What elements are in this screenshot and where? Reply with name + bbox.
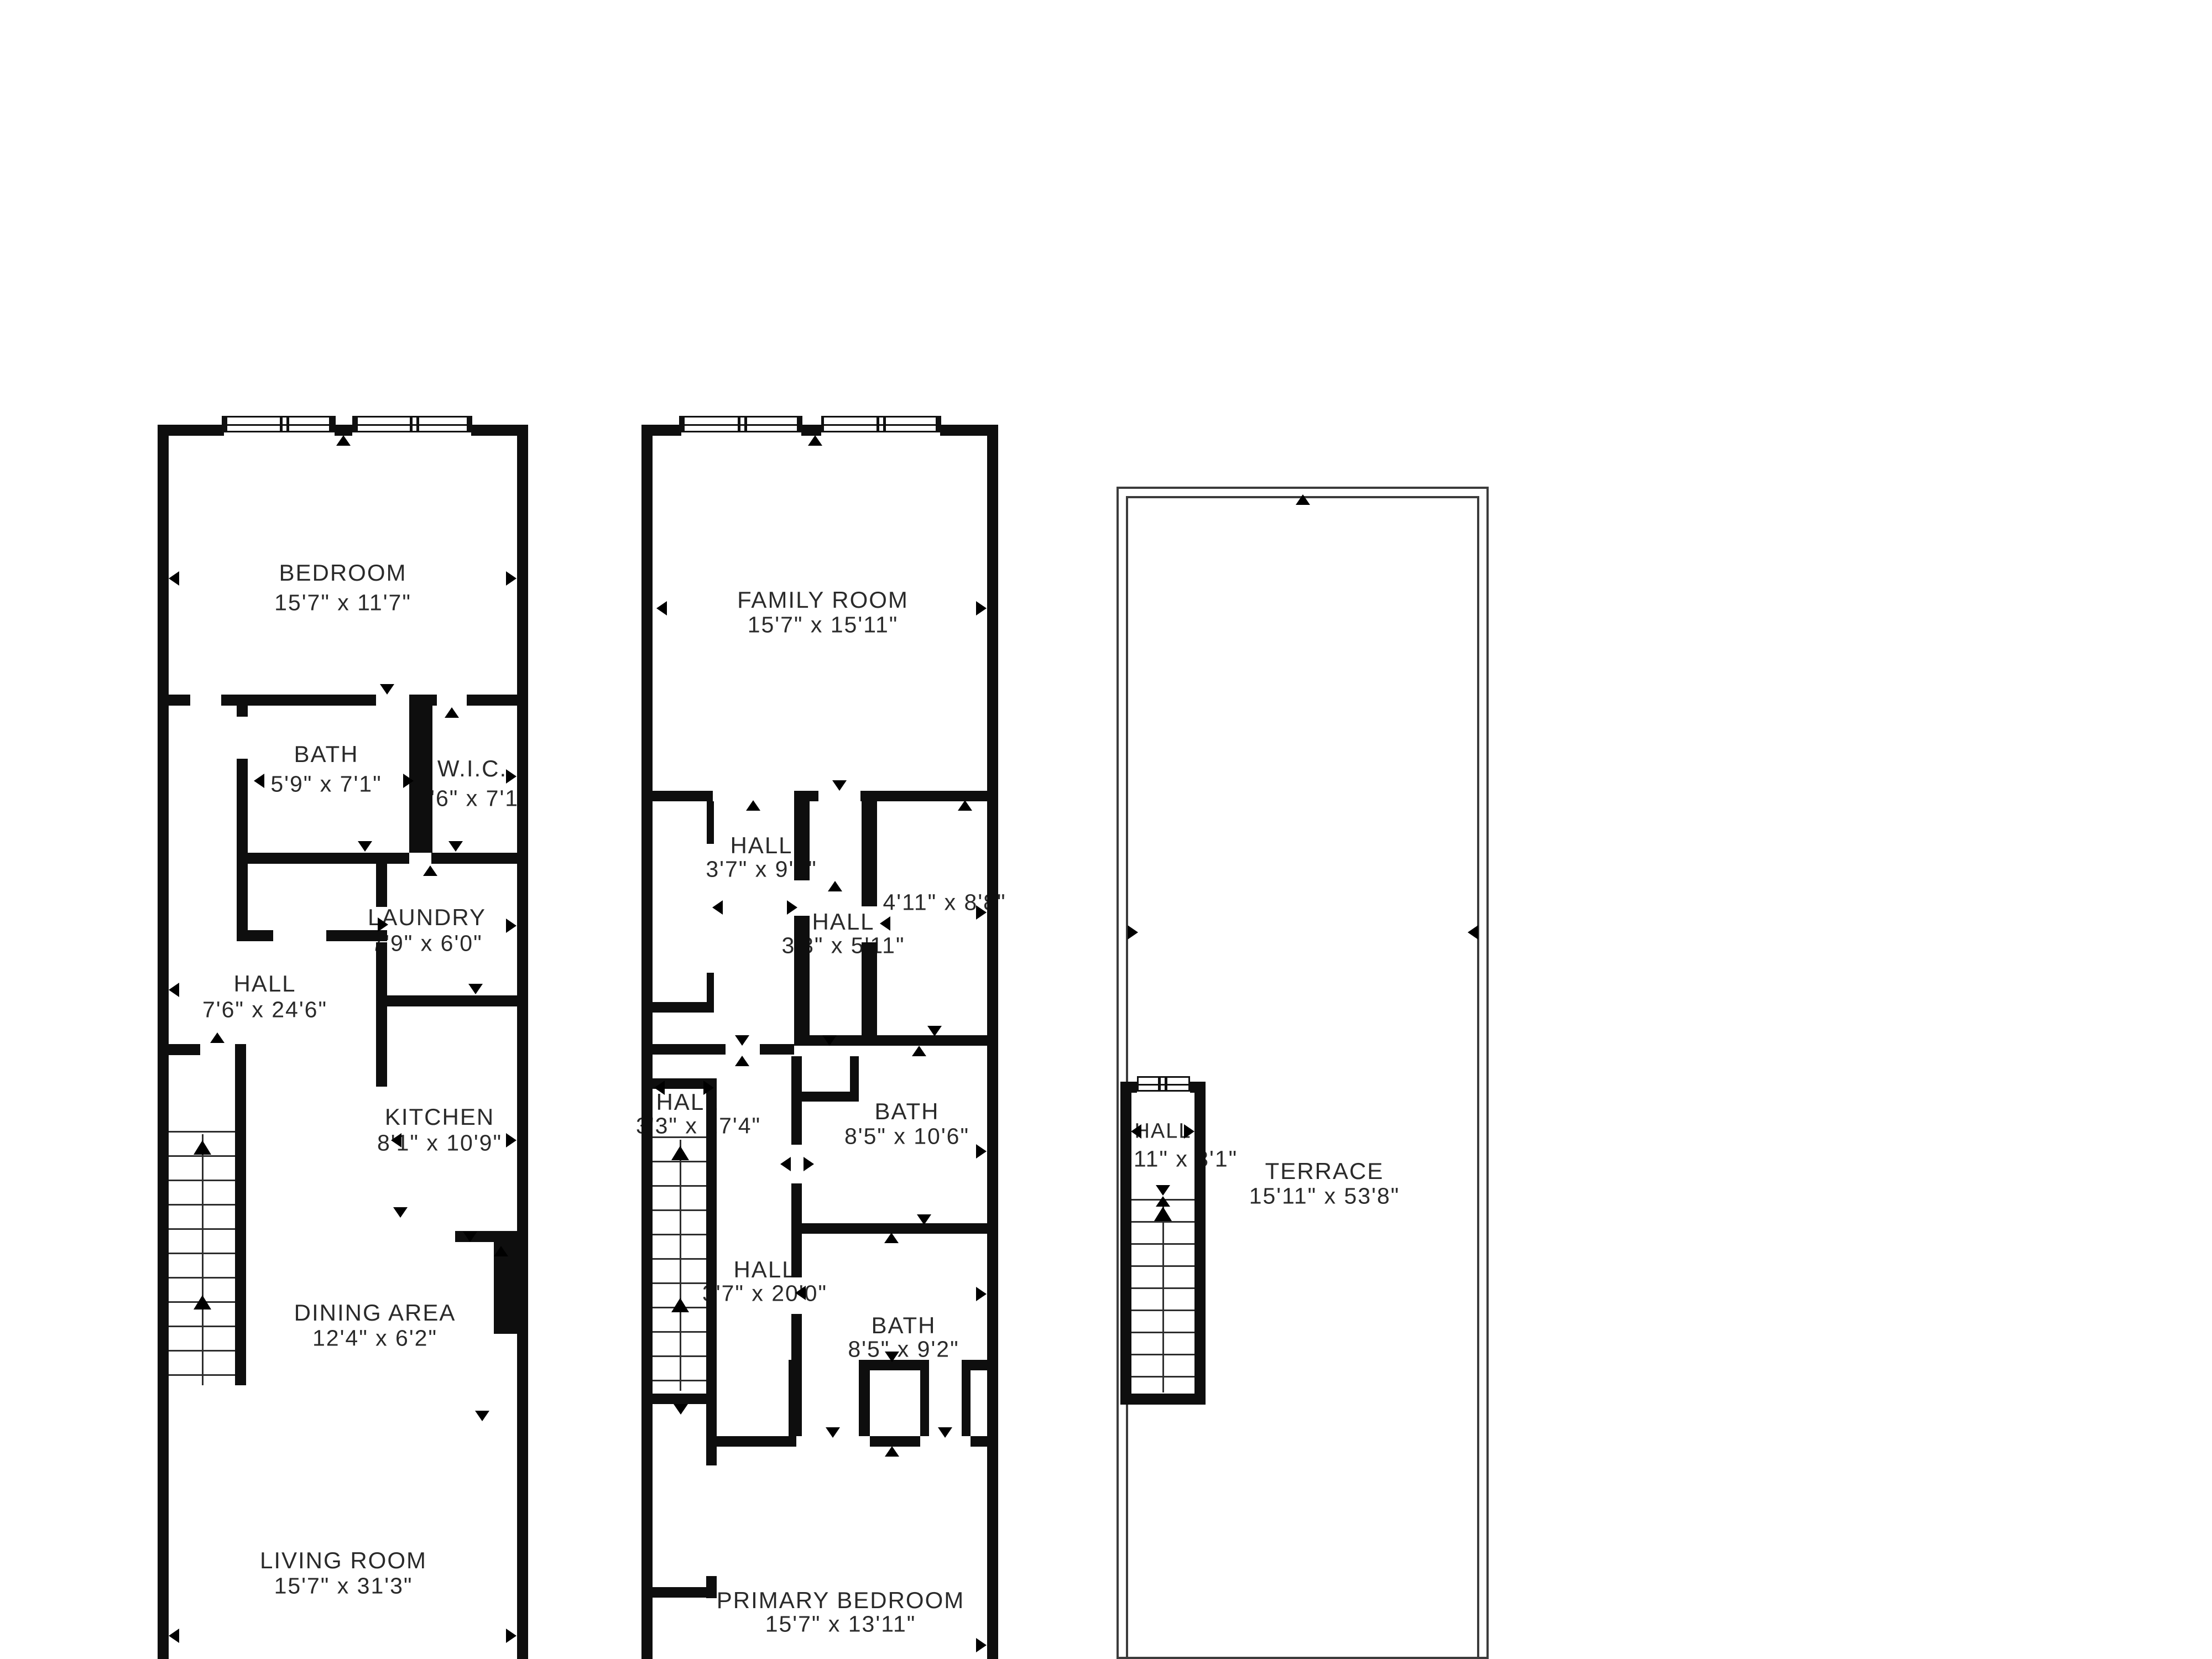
door-direction-icon xyxy=(746,800,760,811)
door-direction-icon xyxy=(976,1144,987,1159)
door-direction-icon xyxy=(976,601,987,615)
wall xyxy=(862,1035,998,1046)
door-direction-icon xyxy=(976,1638,987,1652)
wall xyxy=(335,425,352,436)
door-direction-icon xyxy=(828,881,842,891)
window xyxy=(681,416,801,432)
door-direction-icon xyxy=(795,1286,806,1300)
room-dims-bath-lower: 8'5" x 9'2" xyxy=(848,1337,959,1363)
room-name-primary: PRIMARY BEDROOM xyxy=(717,1587,965,1614)
wall xyxy=(641,425,681,436)
door-direction-icon xyxy=(169,983,179,997)
stairs-up-arrow-icon xyxy=(671,1146,689,1160)
wall xyxy=(237,759,248,941)
staircase-direction-line xyxy=(202,1134,204,1385)
door-direction-icon xyxy=(735,1056,749,1066)
door-direction-icon xyxy=(804,1157,814,1171)
door-direction-icon xyxy=(976,905,987,920)
wall xyxy=(467,695,528,706)
room-dims-bedroom: 15'7" x 11'7" xyxy=(274,590,411,616)
wall xyxy=(794,916,810,1044)
door-direction-icon xyxy=(1156,1196,1170,1207)
wall xyxy=(641,1002,714,1013)
staircase-direction-line xyxy=(1162,1202,1164,1392)
room-dims-primary: 15'7" x 13'11" xyxy=(765,1611,916,1637)
door-direction-icon xyxy=(358,841,372,852)
door-direction-icon xyxy=(169,1629,179,1643)
door-direction-icon xyxy=(506,571,517,586)
wall xyxy=(707,801,714,844)
wall xyxy=(801,425,821,436)
wall xyxy=(920,1360,929,1436)
room-name-hall-upper: HALL xyxy=(730,832,792,859)
wall xyxy=(431,853,517,864)
door-direction-icon xyxy=(445,707,459,718)
wall xyxy=(859,1360,870,1436)
stairs-up-arrow-icon xyxy=(194,1295,211,1310)
staircase-tread xyxy=(653,1136,706,1138)
wall xyxy=(409,695,437,706)
window-mullion xyxy=(738,416,740,432)
wall xyxy=(706,1404,717,1465)
door-direction-icon xyxy=(654,1081,665,1095)
wall xyxy=(641,1394,717,1404)
wall xyxy=(791,1314,802,1360)
room-name-bath-lower: BATH xyxy=(872,1312,936,1339)
door-direction-icon xyxy=(674,1404,688,1415)
wall xyxy=(326,930,387,941)
room-dims-bath-1: 5'9" x 7'1" xyxy=(270,771,382,797)
door-direction-icon xyxy=(656,601,667,615)
window-end-post xyxy=(222,416,227,432)
wall xyxy=(791,1234,802,1277)
room-name-bedroom: BEDROOM xyxy=(279,560,406,586)
wall xyxy=(158,1044,200,1055)
room-dims-hall-lower: 3'7" x 20'0" xyxy=(702,1281,827,1307)
wall xyxy=(862,801,877,880)
door-direction-icon xyxy=(884,1233,899,1243)
door-direction-icon xyxy=(958,800,972,811)
door-direction-icon xyxy=(938,1427,952,1438)
room-dims-hall-f1: 7'6" x 24'6" xyxy=(202,997,327,1023)
window-end-post xyxy=(679,416,685,432)
door-direction-icon xyxy=(391,1133,401,1147)
wall xyxy=(471,425,528,436)
door-direction-icon xyxy=(1128,925,1138,940)
door-direction-icon xyxy=(506,919,517,933)
wall xyxy=(962,1360,971,1436)
wall xyxy=(860,791,998,801)
door-direction-icon xyxy=(403,774,414,788)
wall xyxy=(641,1078,713,1089)
wall xyxy=(796,1092,859,1102)
room-dims-dining: 12'4" x 6'2" xyxy=(312,1326,437,1352)
room-name-bath-1: BATH xyxy=(294,741,359,768)
room-name-hall-lower: HALL xyxy=(733,1256,796,1283)
wall xyxy=(760,1044,794,1055)
wall xyxy=(237,930,273,941)
door-direction-icon xyxy=(393,1207,408,1218)
window-mullion xyxy=(280,416,283,432)
wall xyxy=(158,425,224,436)
door-direction-icon xyxy=(1468,925,1478,940)
window xyxy=(821,416,940,432)
room-dims-terrace: 15'11" x 53'8" xyxy=(1249,1183,1400,1209)
door-direction-icon xyxy=(917,1214,931,1225)
door-direction-icon xyxy=(506,1133,517,1147)
wall xyxy=(717,1436,796,1447)
door-direction-icon xyxy=(885,1446,899,1457)
door-direction-icon xyxy=(506,769,517,784)
window-mullion xyxy=(877,416,879,432)
door-direction-icon xyxy=(506,1629,517,1643)
window-mullion xyxy=(744,416,747,432)
room-name-terrace: TERRACE xyxy=(1265,1158,1384,1185)
room-name-hall-terrace: HALL xyxy=(1134,1120,1191,1144)
door-direction-icon xyxy=(254,774,264,788)
window-mullion xyxy=(286,416,289,432)
door-direction-icon xyxy=(463,1232,477,1242)
wall xyxy=(158,425,169,1659)
wall xyxy=(1120,1394,1206,1405)
window-end-post xyxy=(467,416,472,432)
window-mullion xyxy=(416,416,419,432)
door-direction-icon xyxy=(336,435,351,446)
wall xyxy=(641,1587,717,1598)
door-direction-icon xyxy=(468,984,483,994)
room-name-wic: W.I.C. xyxy=(437,755,507,782)
staircase-direction-line xyxy=(680,1140,681,1391)
door-direction-icon xyxy=(912,1046,926,1056)
stairs-up-arrow-icon xyxy=(194,1140,211,1155)
wall xyxy=(940,425,998,436)
door-direction-icon xyxy=(210,1032,225,1043)
door-direction-icon xyxy=(826,1427,840,1438)
door-direction-icon xyxy=(1184,1124,1194,1139)
door-direction-icon xyxy=(976,1287,987,1301)
room-dims-wic: 5'6" x 7'1" xyxy=(416,786,528,812)
door-direction-icon xyxy=(822,1035,837,1046)
door-direction-icon xyxy=(703,1081,714,1095)
door-direction-icon xyxy=(423,865,437,876)
wall xyxy=(641,1044,726,1055)
room-dims-laundry: 7'9" x 6'0" xyxy=(371,931,482,957)
door-direction-icon xyxy=(735,1035,749,1046)
window-end-post xyxy=(352,416,358,432)
window-mullion xyxy=(410,416,413,432)
door-direction-icon xyxy=(169,571,179,586)
door-direction-icon xyxy=(378,917,388,932)
room-name-family: FAMILY ROOM xyxy=(737,587,909,613)
wall xyxy=(235,1044,246,1385)
wall xyxy=(706,1078,717,1394)
window-mullion xyxy=(1158,1076,1161,1092)
door-direction-icon xyxy=(1156,1185,1170,1196)
wall xyxy=(789,1360,802,1436)
floorplan-canvas: BEDROOM 15'7" x 11'7" BATH 5'9" x 7'1" W… xyxy=(0,0,2212,1659)
room-name-living: LIVING ROOM xyxy=(260,1547,427,1574)
door-direction-icon xyxy=(832,780,847,791)
door-direction-icon xyxy=(885,1352,899,1362)
wall xyxy=(707,973,714,1002)
door-direction-icon xyxy=(494,1246,508,1256)
window-end-post xyxy=(329,416,335,432)
room-name-kitchen: KITCHEN xyxy=(385,1104,494,1130)
wall xyxy=(794,791,818,801)
room-dims-bath-upper: 8'5" x 10'6" xyxy=(844,1124,969,1150)
staircase-tread xyxy=(169,1131,235,1133)
door-direction-icon xyxy=(880,916,890,931)
door-direction-icon xyxy=(712,900,723,915)
room-name-bath-upper: BATH xyxy=(875,1098,940,1125)
room-dims-living: 15'7" x 31'3" xyxy=(274,1573,413,1599)
window xyxy=(1137,1076,1190,1092)
room-dims-family: 15'7" x 15'11" xyxy=(748,612,899,638)
door-direction-icon xyxy=(780,1157,791,1171)
stairs-up-arrow-icon xyxy=(1154,1207,1172,1221)
door-direction-icon xyxy=(448,841,463,852)
window-mullion xyxy=(821,416,824,432)
room-name-hall-center: HALL xyxy=(812,909,874,935)
window-end-post xyxy=(797,416,802,432)
wall xyxy=(791,1183,802,1223)
door-direction-icon xyxy=(475,1411,489,1421)
wall xyxy=(862,942,877,1044)
wall xyxy=(237,695,248,717)
door-direction-icon xyxy=(808,435,822,446)
room-name-dining: DINING AREA xyxy=(294,1300,456,1326)
wall xyxy=(862,880,877,906)
window-end-post xyxy=(936,416,941,432)
wall xyxy=(850,1056,859,1092)
door-direction-icon xyxy=(1131,1124,1141,1139)
wall xyxy=(1194,1082,1206,1405)
wall xyxy=(387,995,517,1006)
wall xyxy=(1120,1082,1131,1405)
wall xyxy=(641,791,713,801)
door-direction-icon xyxy=(1296,494,1310,505)
door-direction-icon xyxy=(927,1026,942,1036)
wall xyxy=(971,1436,998,1447)
door-direction-icon xyxy=(380,684,394,695)
wall xyxy=(971,1360,998,1370)
door-direction-icon xyxy=(787,900,797,915)
room-dims-hall-stairs: 3'3" x 17'4" xyxy=(636,1113,761,1139)
wall xyxy=(870,1436,920,1447)
room-name-hall-f1: HALL xyxy=(233,971,296,997)
stairs-up-arrow-icon xyxy=(671,1298,689,1312)
window-mullion xyxy=(1165,1076,1167,1092)
wall xyxy=(641,425,653,1659)
wall xyxy=(376,860,387,907)
wall xyxy=(158,695,190,706)
wall xyxy=(517,425,528,1659)
room-dims-hall-terrace: '11" x 3'1" xyxy=(1128,1146,1238,1172)
wall xyxy=(794,801,810,880)
window-mullion xyxy=(883,416,886,432)
wall xyxy=(376,942,387,1087)
